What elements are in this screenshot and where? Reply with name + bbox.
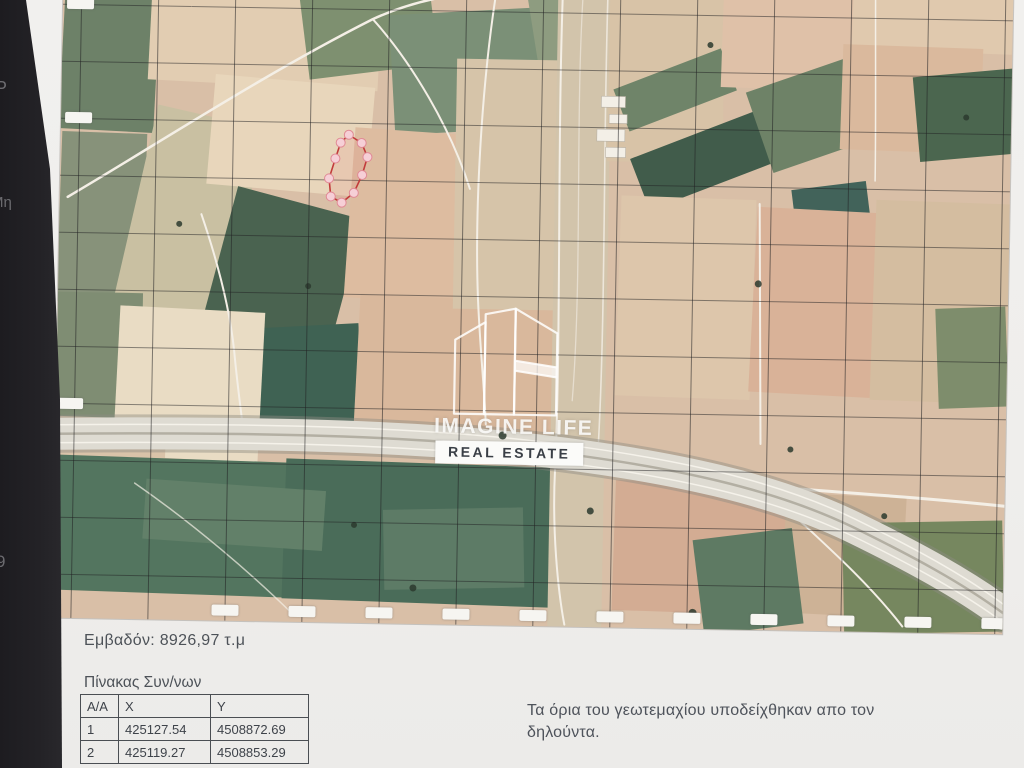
cell-point-y: 4508872.69 (211, 718, 309, 741)
header-cell-x: X (119, 695, 211, 718)
watermark-real-estate-band: REAL ESTATE (435, 440, 583, 466)
watermark-brand-text: IMAGINE LIFE (424, 414, 604, 441)
grid-coordinate-label (904, 617, 931, 628)
grid-coordinate-label (673, 613, 700, 624)
map-imagery: IMAGINE LIFE REAL ESTATE (52, 0, 1013, 634)
parcel-area-label: Εμβαδόν: 8926,97 τ.μ (84, 632, 245, 650)
declaration-note: Τα όρια του γεωτεμαχίου υποδείχθηκαν απο… (527, 700, 927, 744)
cell-point-y: 4508853.29 (211, 741, 309, 764)
grid-coordinate-label (442, 608, 469, 619)
cell-point-id: 1 (81, 718, 119, 741)
table-row: 2 425119.27 4508853.29 (81, 741, 309, 764)
grid-coordinate-label (827, 615, 854, 626)
grid-coordinate-label (211, 604, 238, 615)
cell-point-x: 425127.54 (119, 718, 211, 741)
imagine-life-logo (438, 303, 590, 418)
coords-table-header-row: Α/Α X Y (81, 695, 309, 718)
coords-table: Α/Α X Y 1 425127.54 4508872.69 2 425119.… (80, 694, 309, 764)
bezel-text-fragment: Μη (0, 194, 12, 211)
grid-coordinate-label (67, 0, 94, 9)
grid-coordinate-label (56, 398, 83, 409)
grid-coordinate-label (519, 610, 546, 621)
cell-point-x: 425119.27 (119, 741, 211, 764)
grid-coordinate-label (365, 607, 392, 618)
grid-coordinate-label (981, 618, 1008, 629)
grid-coordinate-label (65, 112, 92, 123)
cell-point-id: 2 (81, 741, 119, 764)
grid-coordinate-label (596, 611, 623, 622)
bezel-text-fragment: 9 (0, 552, 5, 572)
grid-coordinate-label (750, 614, 777, 625)
grid-coordinate-label (288, 606, 315, 617)
table-row: 1 425127.54 4508872.69 (81, 718, 309, 741)
satellite-map: IMAGINE LIFE REAL ESTATE (58, 0, 1008, 626)
bezel-text-fragment: Ρ (0, 78, 7, 99)
coords-table-title: Πίνακας Συν/νων (84, 674, 201, 692)
header-cell-y: Y (211, 695, 309, 718)
header-cell-aa: Α/Α (81, 695, 119, 718)
photographed-survey-document: IMAGINE LIFE REAL ESTATE Ρ Μη 9 Εμβαδόν:… (0, 0, 1024, 768)
